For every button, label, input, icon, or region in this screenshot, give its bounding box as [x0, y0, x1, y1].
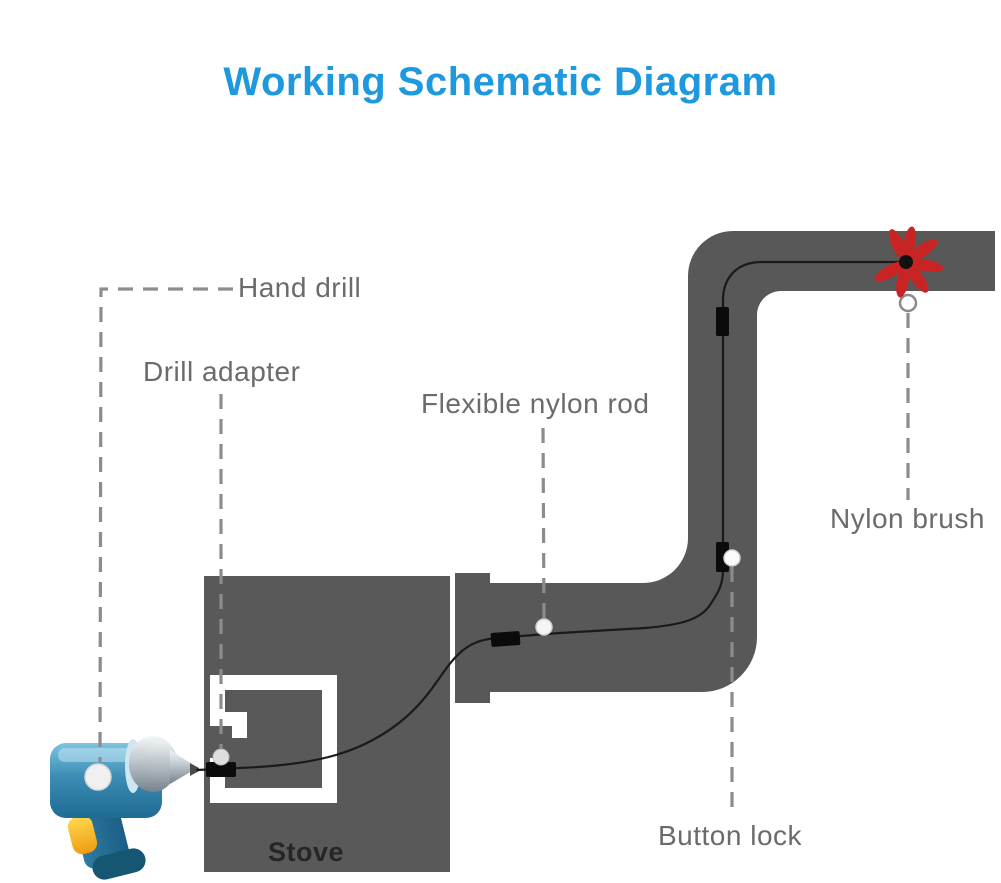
rod-joint-connector-mid — [716, 307, 729, 336]
label-drill-adapter: Drill adapter — [143, 356, 300, 388]
rod-joint-connector-lower — [491, 631, 521, 647]
label-button-lock: Button lock — [658, 820, 802, 852]
label-stove: Stove — [268, 837, 344, 868]
brush-hub — [899, 255, 913, 269]
label-flexible-nylon-rod: Flexible nylon rod — [421, 388, 649, 420]
button-lock-pointer-dot — [724, 550, 740, 566]
drill-adapter-pointer-dot — [213, 749, 229, 765]
chimney-pipe — [490, 231, 995, 692]
nylon-brush-pointer-dot — [900, 295, 916, 311]
label-nylon-brush: Nylon brush — [830, 503, 985, 535]
flexible-rod-leader-line — [543, 428, 544, 618]
hand-drill-graphic — [50, 736, 199, 882]
pipe-flange — [455, 573, 490, 703]
diagram-title: Working Schematic Diagram — [0, 60, 1001, 105]
label-hand-drill: Hand drill — [238, 272, 361, 304]
hand-drill-pointer-dot — [85, 764, 111, 790]
flexible-rod-pointer-dot — [536, 619, 552, 635]
diagram-canvas: Working Schematic Diagram Hand drill Dri… — [0, 0, 1001, 883]
drill-chuck-cone — [170, 750, 192, 784]
schematic-artwork — [0, 0, 1001, 883]
